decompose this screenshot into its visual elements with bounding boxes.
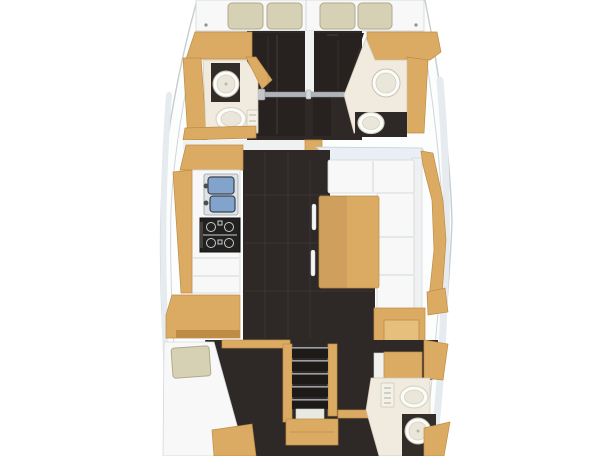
head-aft-stbd-top-wall xyxy=(367,32,441,60)
head-aft-port-drain xyxy=(225,83,228,86)
steps-rail-right xyxy=(328,344,337,416)
galley-sink-top xyxy=(208,177,234,194)
head-aft-stbd-toilet-seat xyxy=(363,117,380,130)
fwd-port-foot-wood xyxy=(212,424,256,456)
galley-faucet-2 xyxy=(204,201,209,206)
galley-upper-cabinet xyxy=(180,145,243,170)
galley-faucet-1 xyxy=(204,184,209,189)
cushion-4 xyxy=(358,3,392,29)
head-aft-port-toilet-seat xyxy=(221,112,241,127)
fwd-port-dresser-edge xyxy=(176,330,240,338)
companionway-divider xyxy=(305,31,314,95)
steps-landing xyxy=(296,409,324,419)
head-aft-port-top-wall xyxy=(186,32,252,59)
head-fwd-right-wall xyxy=(424,340,448,380)
head-fwd-corner-wood xyxy=(424,422,450,456)
head-aft-stbd-sink-basin xyxy=(376,73,396,93)
head-fwd-toilet-seat xyxy=(405,390,424,404)
settee-top xyxy=(328,160,414,193)
cushion-2 xyxy=(267,3,302,29)
salon-table-shade xyxy=(319,196,347,288)
yacht-floor-plan xyxy=(0,0,608,456)
head-fwd-top-wall xyxy=(384,352,422,378)
steps-treads xyxy=(292,347,328,409)
head-fwd-drain xyxy=(417,430,420,433)
galley xyxy=(173,145,243,293)
head-aft-port-foot-wall xyxy=(183,126,256,140)
head-aft-stbd-hull-wall xyxy=(407,57,428,133)
cushion-3 xyxy=(320,3,355,29)
cushion-1 xyxy=(228,3,263,29)
galley-sink-bottom xyxy=(210,196,235,212)
fwd-port-pillow xyxy=(171,346,211,379)
floor-plan-canvas xyxy=(0,0,608,456)
stanchion-dot-left xyxy=(204,23,207,26)
stanchion-dot-right xyxy=(414,23,417,26)
nav-hull-wood xyxy=(427,288,448,315)
grab-post-1 xyxy=(312,204,316,230)
steps-rail-left xyxy=(283,344,292,422)
settee-side xyxy=(377,193,414,310)
fwd-port-rail xyxy=(222,340,290,348)
grab-post-2 xyxy=(311,250,315,276)
stove-knobs xyxy=(200,222,203,248)
head-fwd-seat xyxy=(374,353,384,378)
